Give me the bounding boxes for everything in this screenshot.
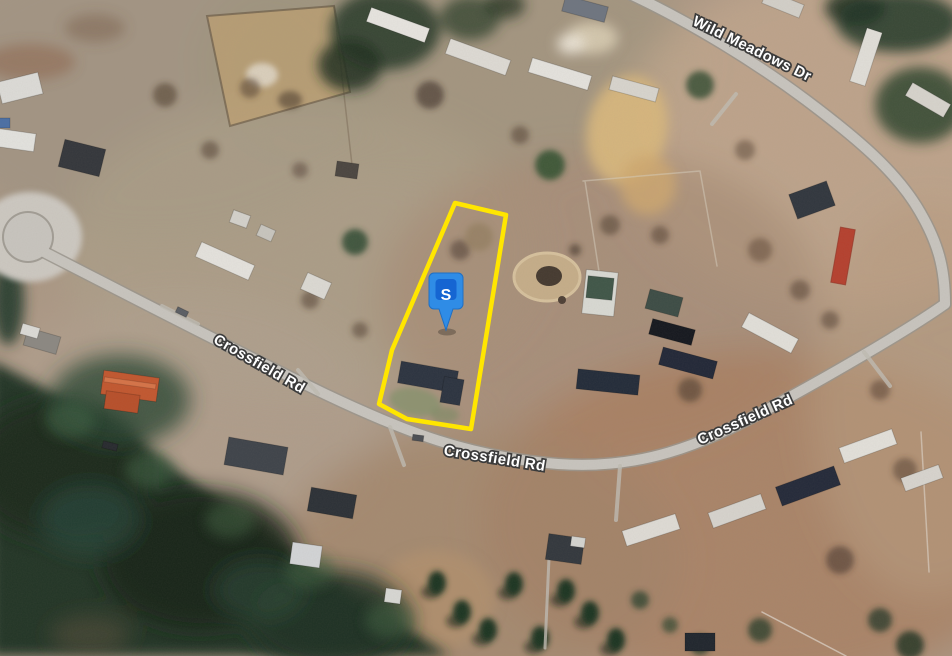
satellite-map[interactable]: Wild Meadows Dr Crossfield Rd Crossfield… [0,0,952,656]
marker-letter: S [441,287,452,304]
photo-grain [0,0,952,656]
